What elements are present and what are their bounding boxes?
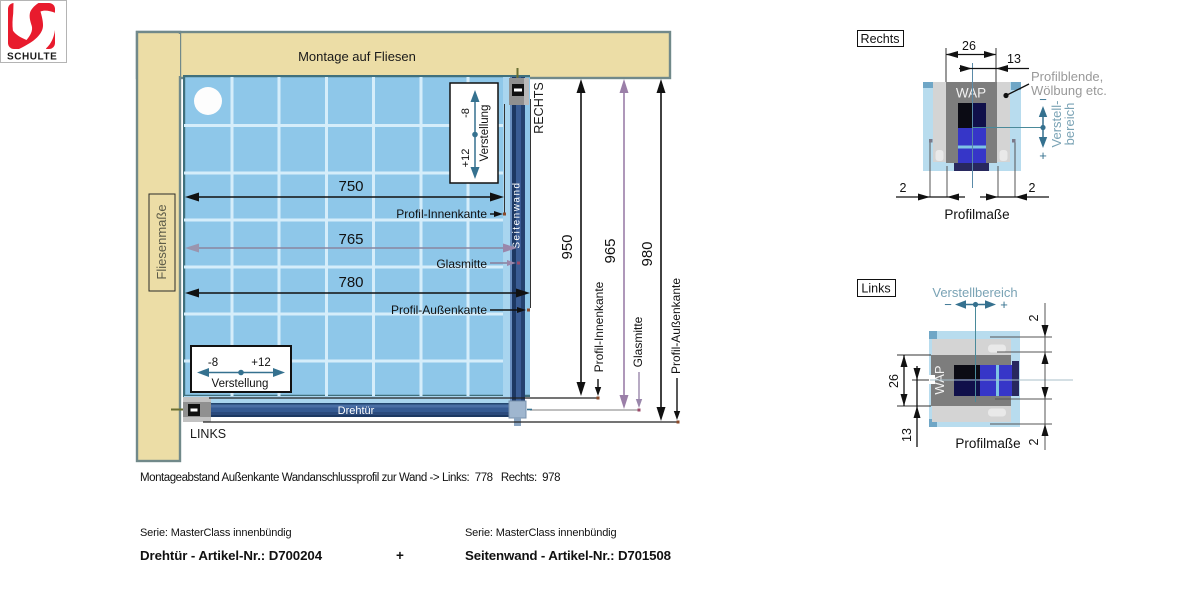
svg-text:13: 13 (1007, 52, 1021, 66)
svg-text:980: 980 (639, 241, 656, 266)
svg-text:Profil-Außenkante: Profil-Außenkante (391, 303, 487, 317)
svg-text:Montage auf Fliesen: Montage auf Fliesen (298, 49, 416, 64)
svg-text:2: 2 (1027, 438, 1041, 445)
svg-text:−: − (944, 297, 952, 312)
svg-text:Profil-Außenkante: Profil-Außenkante (669, 278, 683, 374)
svg-text:Seitenwand: Seitenwand (512, 181, 523, 248)
svg-text:-8: -8 (460, 108, 472, 118)
svg-text:950: 950 (559, 234, 576, 259)
svg-text:Rechts: Rechts (861, 32, 900, 46)
svg-text:−: − (1039, 92, 1047, 107)
svg-text:Glasmitte: Glasmitte (631, 316, 645, 367)
svg-text:Montageabstand Außenkante Wand: Montageabstand Außenkante Wandanschlussp… (140, 472, 560, 484)
svg-text:Profil-Innenkante: Profil-Innenkante (592, 281, 606, 372)
svg-text:RECHTS: RECHTS (532, 82, 546, 133)
svg-text:2: 2 (1029, 181, 1036, 195)
svg-text:Verstellung: Verstellung (212, 378, 269, 390)
svg-text:Verstellung: Verstellung (479, 105, 491, 162)
svg-text:Seitenwand - Artikel-Nr.: D701: Seitenwand - Artikel-Nr.: D701508 (465, 548, 671, 563)
svg-text:Drehtür: Drehtür (338, 405, 375, 417)
svg-text:Drehtür - Artikel-Nr.: D700204: Drehtür - Artikel-Nr.: D700204 (140, 548, 323, 563)
svg-text:26: 26 (887, 374, 901, 388)
svg-text:780: 780 (338, 274, 363, 291)
svg-text:2: 2 (900, 181, 907, 195)
svg-text:Profilmaße: Profilmaße (944, 207, 1009, 222)
svg-text:+: + (396, 548, 404, 563)
svg-text:Serie: MasterClass innenbündig: Serie: MasterClass innenbündig (465, 527, 616, 539)
svg-text:LINKS: LINKS (190, 427, 226, 441)
svg-text:Fliesenmaße: Fliesenmaße (154, 204, 169, 279)
svg-text:+: + (1039, 148, 1047, 163)
svg-text:bereich: bereich (1062, 103, 1077, 146)
svg-text:+12: +12 (460, 149, 472, 168)
svg-text:Profilblende,: Profilblende, (1031, 69, 1103, 84)
svg-text:Glasmitte: Glasmitte (436, 257, 487, 271)
svg-text:Profil-Innenkante: Profil-Innenkante (396, 207, 487, 221)
svg-text:+12: +12 (251, 357, 271, 369)
svg-text:Profilmaße: Profilmaße (955, 436, 1020, 451)
svg-text:26: 26 (962, 39, 976, 53)
svg-text:750: 750 (338, 178, 363, 195)
svg-text:-8: -8 (208, 357, 218, 369)
svg-text:+: + (1000, 297, 1008, 312)
svg-text:765: 765 (338, 231, 363, 248)
svg-text:Links: Links (861, 282, 890, 296)
svg-text:Serie: MasterClass innenbündig: Serie: MasterClass innenbündig (140, 527, 291, 539)
svg-text:WAP: WAP (956, 86, 986, 101)
svg-text:965: 965 (602, 238, 619, 263)
svg-text:13: 13 (900, 428, 914, 442)
svg-text:2: 2 (1027, 314, 1041, 321)
svg-text:SCHULTE: SCHULTE (7, 52, 57, 63)
